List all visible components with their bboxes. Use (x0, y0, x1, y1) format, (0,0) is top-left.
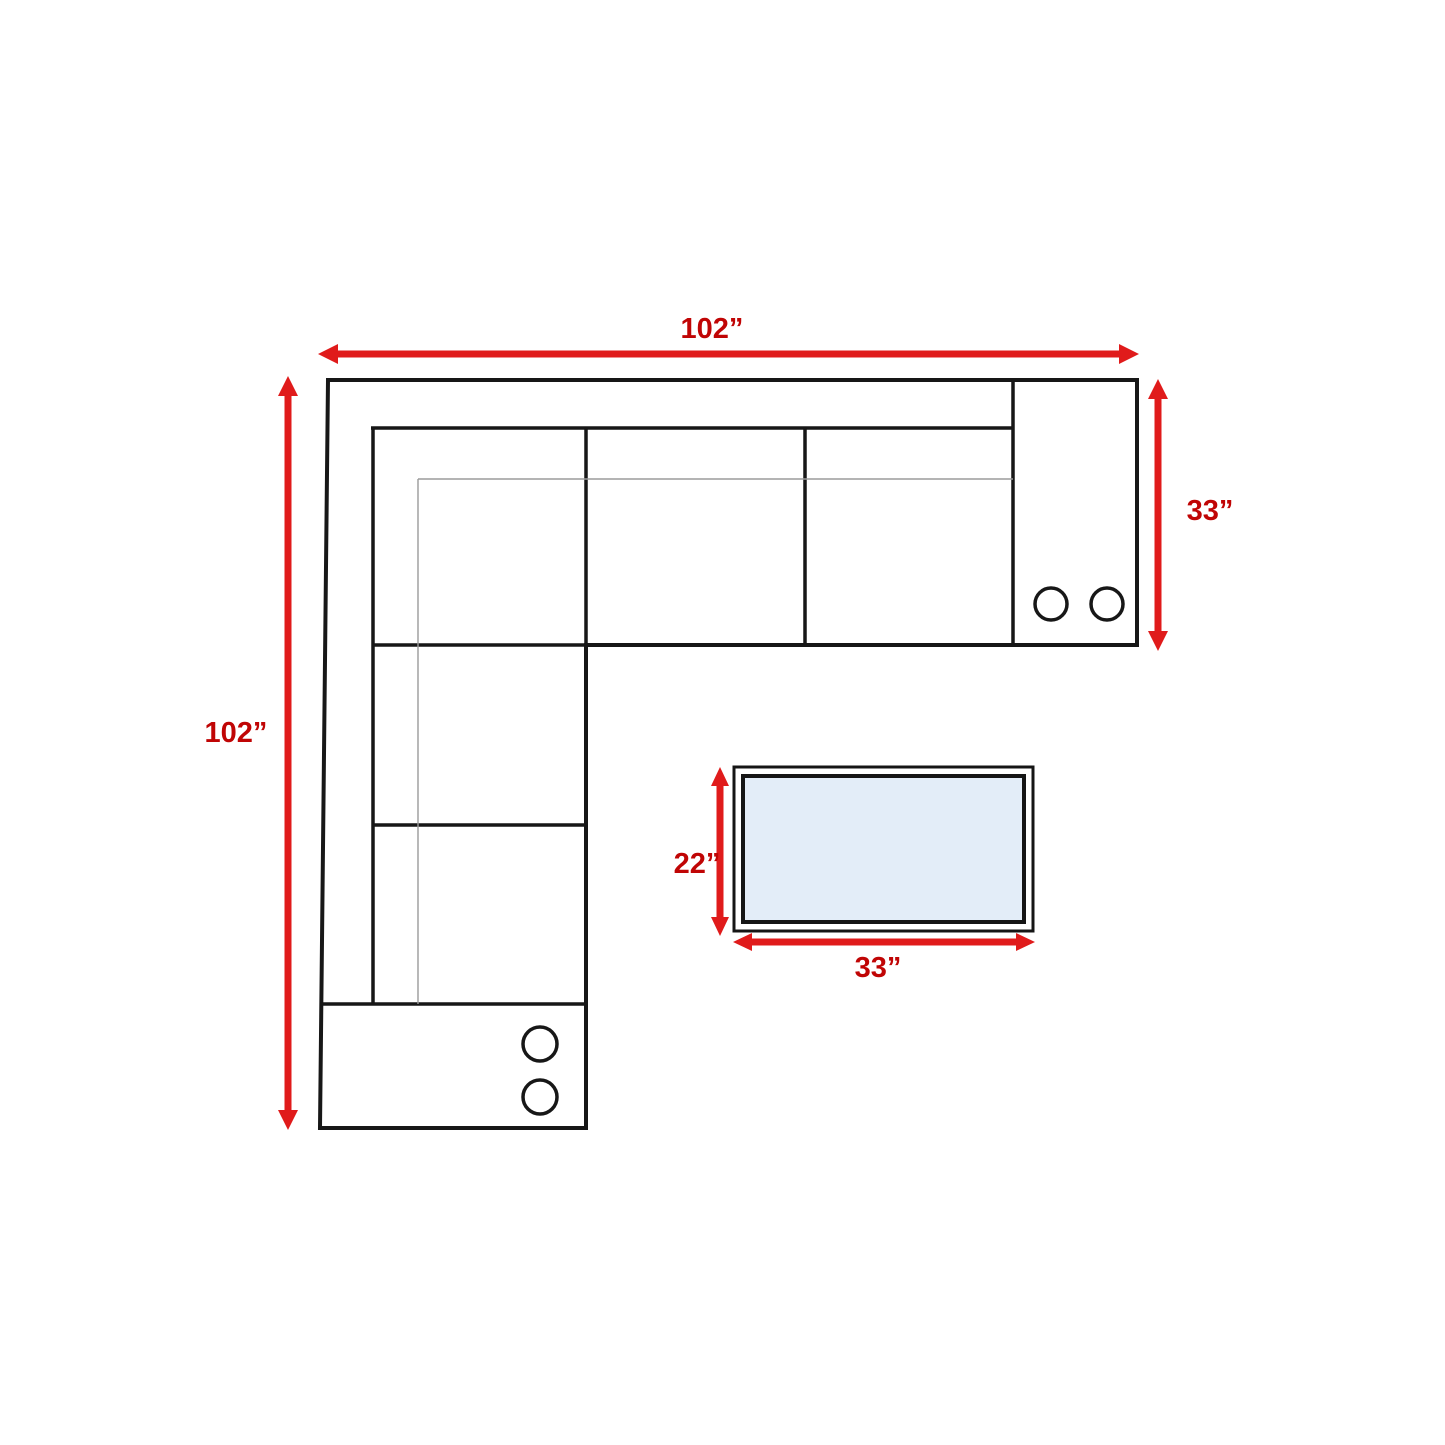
arrow-head-down-icon (278, 1110, 298, 1130)
cup-holder (523, 1027, 557, 1061)
dim-arrow-sofa-width (318, 344, 1139, 364)
dim-arrow-table-width (733, 933, 1035, 951)
floor-plan-diagram: 102” 102” 33” 22” 33” (0, 0, 1445, 1445)
dim-label-sofa-depth: 102” (205, 717, 268, 749)
arrow-head-right-icon (1016, 933, 1035, 951)
diagram-svg: 102” 102” 33” 22” 33” (0, 0, 1445, 1445)
arrow-head-up-icon (711, 767, 729, 786)
arrow-head-up-icon (1148, 379, 1168, 399)
arrow-head-right-icon (1119, 344, 1139, 364)
dim-arrow-arm-depth (1148, 379, 1168, 651)
cup-holder (1091, 588, 1123, 620)
arrow-head-down-icon (711, 917, 729, 936)
dim-label-arm-depth: 33” (1187, 495, 1234, 527)
coffee-table (734, 767, 1033, 931)
arrow-head-down-icon (1148, 631, 1168, 651)
dim-label-table-width: 33” (855, 952, 902, 984)
coffee-table-glass-top (743, 776, 1024, 922)
sectional-sofa (320, 380, 1137, 1128)
dim-label-sofa-width: 102” (681, 313, 744, 345)
dim-label-table-depth: 22” (674, 848, 721, 880)
arrow-head-up-icon (278, 376, 298, 396)
arrow-head-left-icon (733, 933, 752, 951)
arrow-head-left-icon (318, 344, 338, 364)
dim-arrow-sofa-depth (278, 376, 298, 1130)
cup-holder (1035, 588, 1067, 620)
cup-holder (523, 1080, 557, 1114)
